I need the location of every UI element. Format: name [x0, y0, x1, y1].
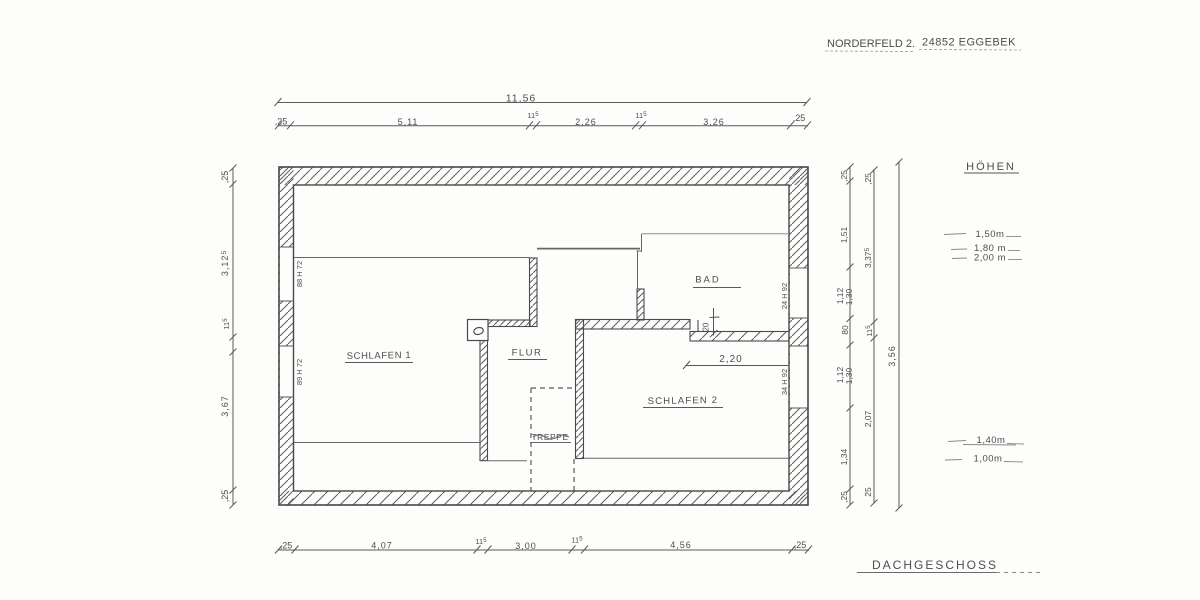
svg-text:115: 115 — [222, 318, 231, 330]
svg-text:20: 20 — [702, 322, 711, 331]
svg-text:,25: ,25 — [839, 491, 849, 503]
svg-text:2,26: 2,26 — [575, 117, 597, 127]
svg-text:24 H 92: 24 H 92 — [780, 283, 789, 309]
svg-text:1,30: 1,30 — [844, 288, 854, 305]
svg-text:BAD: BAD — [695, 275, 721, 286]
svg-text:1,34: 1,34 — [839, 448, 849, 465]
svg-text:,25: ,25 — [220, 490, 230, 503]
svg-text:,25: ,25 — [275, 117, 288, 127]
svg-text:,25: ,25 — [220, 171, 230, 184]
svg-text:3,26: 3,26 — [703, 117, 725, 127]
svg-text:2,07: 2,07 — [863, 410, 873, 427]
svg-text:3,00: 3,00 — [515, 541, 537, 551]
svg-text:88 H 72: 88 H 72 — [295, 261, 304, 287]
svg-text:,25: ,25 — [839, 170, 849, 182]
svg-text:TREPPE: TREPPE — [531, 432, 568, 442]
svg-text:FLUR: FLUR — [512, 348, 543, 359]
svg-text:11,56: 11,56 — [506, 93, 537, 105]
svg-text:SCHLAFEN 1: SCHLAFEN 1 — [347, 350, 412, 362]
svg-text:34 H 92: 34 H 92 — [780, 369, 789, 395]
svg-text:3,67: 3,67 — [220, 395, 230, 417]
svg-text:1,51: 1,51 — [839, 226, 849, 243]
svg-text:115: 115 — [635, 111, 647, 120]
svg-text:3,125: 3,125 — [220, 250, 230, 276]
svg-text:3,56: 3,56 — [887, 345, 897, 367]
svg-text:2,20: 2,20 — [719, 354, 742, 365]
svg-text:1,30: 1,30 — [844, 367, 854, 384]
svg-text:1,00m: 1,00m — [974, 454, 1003, 465]
svg-text:80: 80 — [840, 325, 850, 335]
svg-text:5,11: 5,11 — [398, 117, 419, 127]
svg-text:25: 25 — [863, 487, 873, 497]
svg-text:115: 115 — [527, 111, 539, 120]
svg-text:2,00 m: 2,00 m — [974, 253, 1006, 264]
svg-text:115: 115 — [571, 536, 583, 545]
svg-text:24852 EGGEBEK: 24852 EGGEBEK — [922, 37, 1016, 49]
svg-text:,25: ,25 — [863, 173, 873, 185]
svg-text:,25: ,25 — [280, 541, 293, 551]
svg-text:1,50m: 1,50m — [976, 229, 1005, 240]
svg-text:DACHGESCHOSS: DACHGESCHOSS — [872, 558, 998, 572]
svg-text:NORDERFELD 2.: NORDERFELD 2. — [827, 38, 915, 50]
svg-text:SCHLAFEN 2: SCHLAFEN 2 — [648, 395, 719, 407]
svg-text:,25: ,25 — [793, 113, 806, 123]
svg-text:HÖHEN: HÖHEN — [966, 161, 1016, 173]
svg-text:89 H 72: 89 H 72 — [295, 359, 304, 385]
svg-text:4,07: 4,07 — [371, 541, 393, 551]
svg-text:4,56: 4,56 — [670, 540, 692, 550]
svg-text:3,375: 3,375 — [863, 248, 873, 269]
svg-text:,25: ,25 — [794, 540, 807, 550]
svg-text:115: 115 — [865, 325, 874, 337]
svg-text:115: 115 — [475, 537, 487, 546]
